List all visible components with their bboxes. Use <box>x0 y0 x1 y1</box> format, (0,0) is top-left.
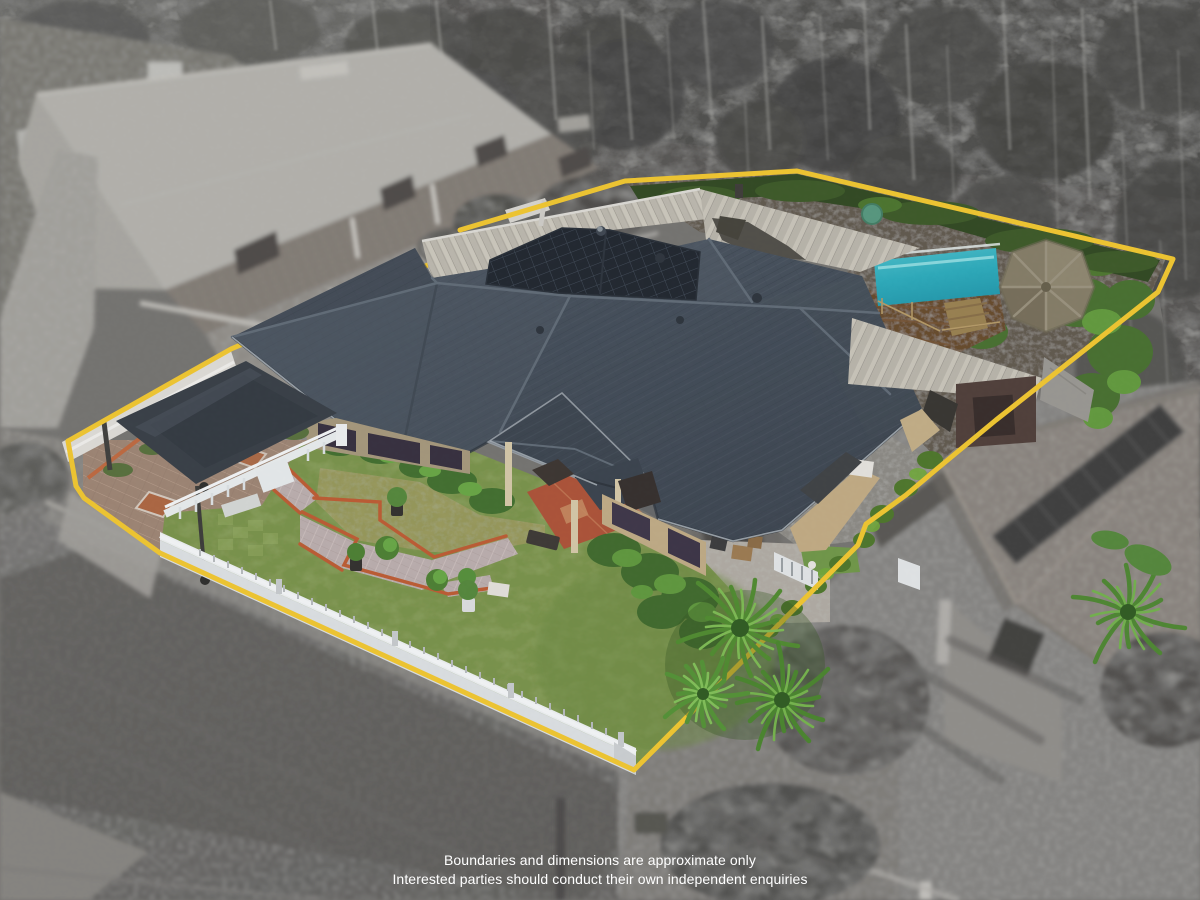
svg-text:Boundaries and dimensions are: Boundaries and dimensions are approximat… <box>444 852 756 868</box>
svg-text:Interested parties should cond: Interested parties should conduct their … <box>392 871 807 887</box>
